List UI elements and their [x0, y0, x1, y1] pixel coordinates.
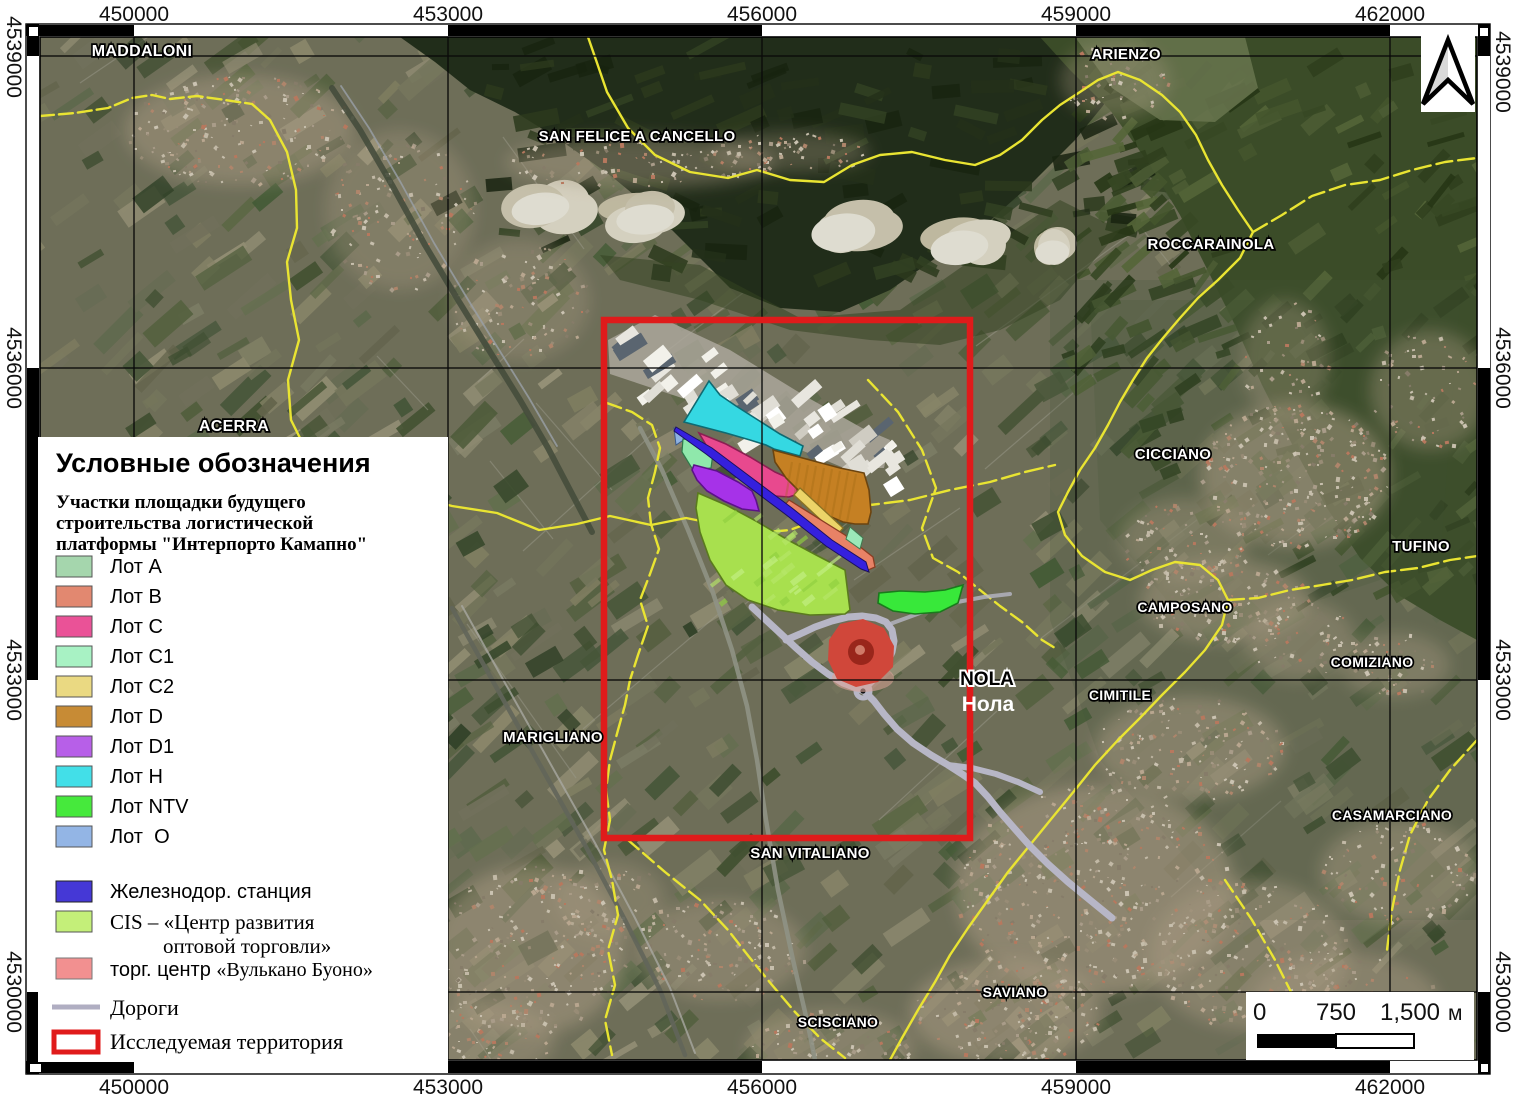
- svg-text:4539000: 4539000: [2, 16, 25, 98]
- svg-text:SCISCIANO: SCISCIANO: [798, 1014, 879, 1030]
- svg-text:Лот C1: Лот C1: [110, 646, 174, 668]
- svg-text:4536000: 4536000: [1491, 327, 1514, 409]
- svg-text:ROCCARAINOLA: ROCCARAINOLA: [1148, 236, 1275, 253]
- svg-text:SAVIANO: SAVIANO: [983, 984, 1048, 1000]
- svg-text:Условные обозначения: Условные обозначения: [56, 448, 371, 478]
- svg-text:Лот D1: Лот D1: [110, 736, 174, 758]
- svg-text:Лот B: Лот B: [110, 586, 162, 608]
- svg-text:CICCIANO: CICCIANO: [1135, 446, 1212, 463]
- svg-text:459000: 459000: [1041, 1076, 1111, 1097]
- svg-text:SAN VITALIANO: SAN VITALIANO: [750, 845, 869, 862]
- svg-text:4539000: 4539000: [1491, 31, 1514, 113]
- svg-text:торг. центр «Вулькано Буоно»: торг. центр «Вулькано Буоно»: [110, 959, 373, 981]
- svg-text:MADDALONI: MADDALONI: [92, 43, 192, 60]
- svg-text:Лот H: Лот H: [110, 766, 163, 788]
- svg-text:456000: 456000: [727, 1076, 797, 1097]
- svg-text:Лот A: Лот A: [110, 556, 163, 578]
- svg-text:Лот NTV: Лот NTV: [110, 796, 189, 818]
- svg-text:TUFINO: TUFINO: [1392, 538, 1450, 555]
- svg-text:456000: 456000: [727, 3, 797, 26]
- svg-text:4530000: 4530000: [1491, 951, 1514, 1033]
- svg-text:Участки площадки будущего: Участки площадки будущего: [56, 492, 306, 513]
- svg-text:Исследуемая территория: Исследуемая территория: [110, 1029, 343, 1054]
- svg-text:4533000: 4533000: [2, 639, 25, 721]
- svg-text:COMIZIANO: COMIZIANO: [1331, 654, 1414, 670]
- svg-text:462000: 462000: [1355, 3, 1425, 26]
- svg-text:Лот D: Лот D: [110, 706, 163, 728]
- svg-text:Железнодор. станция: Железнодор. станция: [110, 881, 312, 903]
- svg-text:CASAMARCIANO: CASAMARCIANO: [1332, 807, 1452, 823]
- svg-text:450000: 450000: [99, 3, 169, 26]
- svg-text:ACERRA: ACERRA: [199, 418, 269, 435]
- svg-text:Лот C2: Лот C2: [110, 676, 174, 698]
- svg-text:450000: 450000: [99, 1076, 169, 1097]
- svg-text:строительства логистической: строительства логистической: [56, 513, 313, 534]
- svg-text:4533000: 4533000: [1491, 639, 1514, 721]
- svg-text:м: м: [1448, 1002, 1462, 1025]
- svg-text:платформы "Интерпорто Камапно": платформы "Интерпорто Камапно": [56, 534, 367, 555]
- svg-text:453000: 453000: [413, 1076, 483, 1097]
- svg-text:462000: 462000: [1355, 1076, 1425, 1097]
- svg-text:оптовой торговли»: оптовой торговли»: [163, 934, 331, 958]
- svg-text:CAMPOSANO: CAMPOSANO: [1137, 599, 1232, 615]
- svg-text:Лот O: Лот O: [110, 826, 170, 848]
- svg-text:750: 750: [1316, 999, 1356, 1026]
- svg-text:MARIGLIANO: MARIGLIANO: [503, 729, 603, 746]
- svg-text:CIS – «Центр развития: CIS – «Центр развития: [110, 910, 315, 934]
- svg-text:0: 0: [1253, 999, 1266, 1026]
- svg-text:NOLA: NOLA: [960, 669, 1014, 690]
- svg-text:453000: 453000: [413, 3, 483, 26]
- svg-text:459000: 459000: [1041, 3, 1111, 26]
- svg-text:ARIENZO: ARIENZO: [1091, 46, 1161, 63]
- svg-text:SAN FELICE A CANCELLO: SAN FELICE A CANCELLO: [539, 128, 736, 145]
- svg-text:Нола: Нола: [962, 693, 1015, 716]
- svg-text:4530000: 4530000: [2, 951, 25, 1033]
- svg-text:4536000: 4536000: [2, 327, 25, 409]
- svg-text:Дороги: Дороги: [110, 995, 179, 1020]
- svg-text:1,500: 1,500: [1380, 999, 1440, 1026]
- svg-text:CIMITILE: CIMITILE: [1089, 687, 1151, 703]
- svg-text:Лот C: Лот C: [110, 616, 163, 638]
